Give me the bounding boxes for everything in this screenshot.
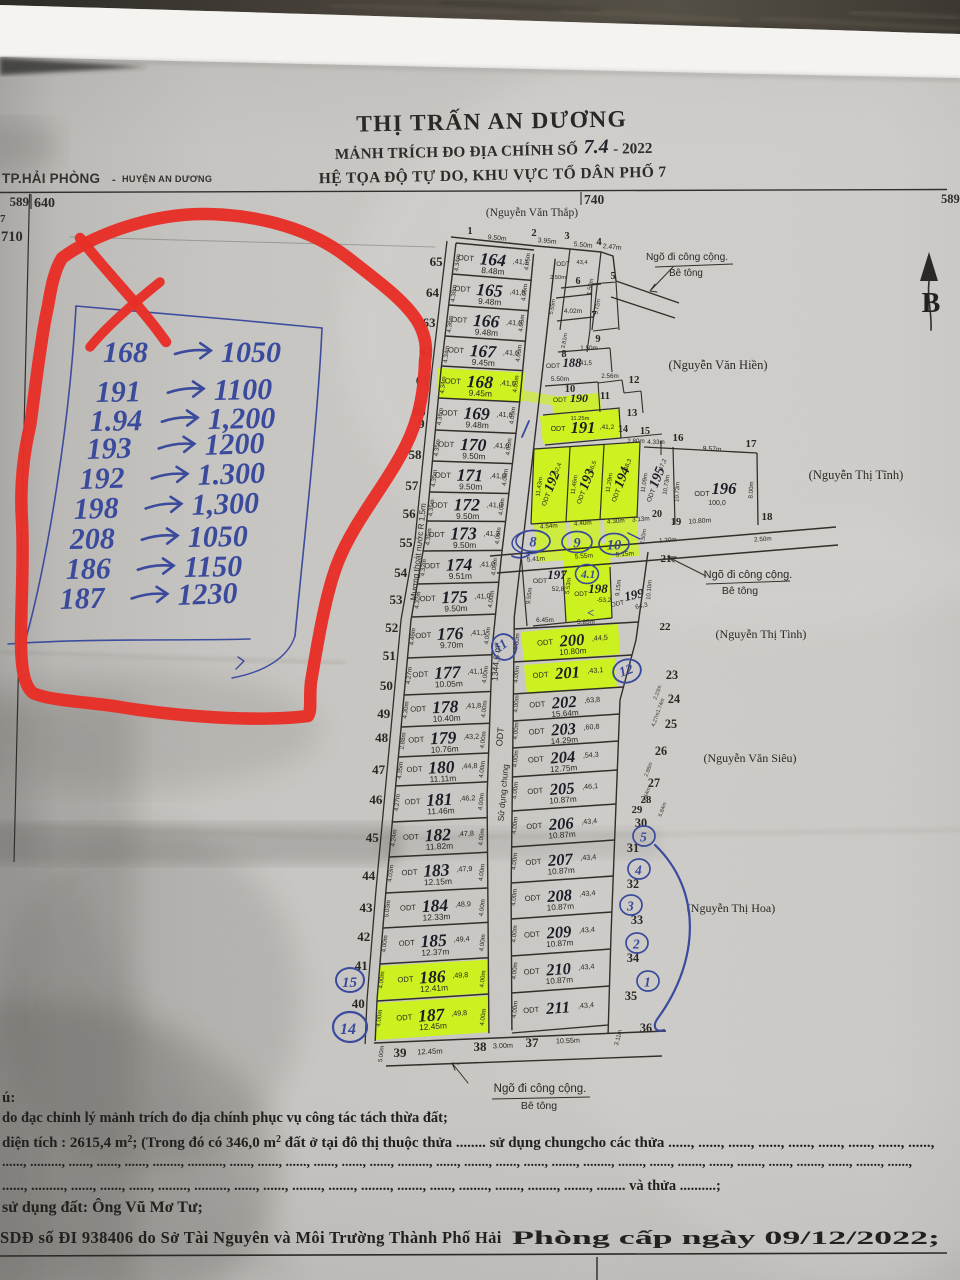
svg-text:ODT: ODT	[400, 903, 417, 913]
svg-text:12: 12	[629, 374, 641, 386]
svg-text:37: 37	[526, 1035, 540, 1050]
svg-text:41: 41	[355, 958, 368, 973]
svg-text:29: 29	[632, 804, 643, 816]
svg-text:ODT: ODT	[574, 591, 588, 598]
svg-text:ODT: ODT	[403, 832, 420, 842]
svg-text:,46,1: ,46,1	[582, 781, 599, 791]
svg-text:Ngõ đi công cộng.: Ngõ đi công cộng.	[646, 252, 728, 263]
svg-text:3.00m: 3.00m	[493, 1041, 513, 1051]
svg-text:,44,5: ,44,5	[592, 633, 609, 643]
svg-text:35: 35	[625, 989, 637, 1003]
svg-text:12.37m: 12.37m	[421, 946, 449, 958]
svg-text:12.15m: 12.15m	[424, 876, 452, 887]
svg-text:3: 3	[564, 231, 569, 242]
svg-text:190: 190	[570, 391, 588, 405]
svg-text:4: 4	[596, 237, 602, 248]
svg-text:TP.HẢI PHÒNG: TP.HẢI PHÒNG	[2, 171, 100, 186]
svg-text:Ngõ đi công cộng.: Ngõ đi công cộng.	[494, 1083, 587, 1095]
svg-text:14: 14	[340, 1021, 356, 1038]
svg-text:6: 6	[576, 276, 581, 287]
svg-text:10.87m: 10.87m	[546, 902, 574, 913]
svg-text:1050: 1050	[188, 520, 249, 554]
svg-text:Phòng cấp ngày 09/12/2022;: Phòng cấp ngày 09/12/2022;	[512, 1228, 940, 1249]
svg-text:- 2022: - 2022	[613, 140, 653, 158]
svg-text:44: 44	[362, 868, 376, 883]
svg-text:47: 47	[372, 762, 386, 777]
svg-text:640: 640	[34, 196, 55, 211]
svg-text:6.45m: 6.45m	[536, 617, 554, 624]
svg-text:10.73m: 10.73m	[674, 482, 681, 502]
svg-text:9.70m: 9.70m	[440, 639, 464, 650]
svg-text:187: 187	[59, 581, 106, 616]
svg-text:,46,2: ,46,2	[459, 793, 475, 803]
svg-text:1050: 1050	[221, 336, 281, 369]
svg-text:3.13m: 3.13m	[632, 515, 650, 523]
svg-text:,47,8: ,47,8	[458, 829, 474, 839]
svg-text:ODT: ODT	[529, 699, 546, 709]
svg-text:24: 24	[668, 692, 680, 706]
svg-text:9.50m: 9.50m	[444, 603, 468, 614]
svg-text:8: 8	[529, 535, 537, 551]
svg-text:10.87m: 10.87m	[548, 830, 576, 841]
svg-text:10.55m: 10.55m	[556, 1036, 580, 1046]
svg-text:1,300: 1,300	[191, 487, 260, 522]
svg-text:20: 20	[652, 509, 662, 520]
svg-text:(Nguyễn Thị Hoa): (Nguyễn Thị Hoa)	[687, 901, 775, 915]
svg-text:41,5: 41,5	[580, 361, 592, 367]
svg-text:100,0: 100,0	[708, 500, 726, 507]
svg-text:10.76m: 10.76m	[431, 743, 459, 754]
svg-text:10.40m: 10.40m	[433, 713, 461, 724]
svg-text:4: 4	[634, 863, 642, 878]
svg-text:5.15m: 5.15m	[616, 550, 635, 558]
svg-text:4.33m: 4.33m	[647, 439, 665, 446]
svg-text:9.50m: 9.50m	[456, 511, 479, 521]
svg-text:9.48m: 9.48m	[475, 326, 499, 338]
svg-text:ODT: ODT	[406, 764, 423, 774]
svg-text:ODT: ODT	[494, 726, 506, 746]
svg-text:ODT: ODT	[694, 489, 710, 498]
svg-text:46: 46	[369, 792, 383, 807]
svg-text:4.54m: 4.54m	[540, 522, 558, 530]
svg-text:B: B	[922, 288, 941, 319]
svg-text:,41,8: ,41,8	[465, 701, 481, 711]
svg-text:(Nguyễn Văn Thắp): (Nguyễn Văn Thắp)	[486, 206, 578, 219]
svg-text:10.87m: 10.87m	[547, 866, 575, 877]
svg-text:,49,4: ,49,4	[453, 934, 469, 944]
svg-text:ODT: ODT	[551, 426, 567, 433]
svg-text:(Nguyễn Văn Siêu): (Nguyễn Văn Siêu)	[703, 751, 796, 765]
svg-text:-: -	[112, 174, 116, 186]
svg-text:8.00m: 8.00m	[748, 481, 756, 499]
svg-text:8.48m: 8.48m	[481, 265, 505, 277]
svg-text:2: 2	[632, 937, 640, 952]
svg-text:19: 19	[671, 517, 682, 528]
svg-text:12.41m: 12.41m	[420, 982, 449, 994]
svg-text:<: <	[587, 605, 594, 620]
svg-text:9.57m: 9.57m	[702, 446, 722, 454]
svg-text:11.25m: 11.25m	[571, 416, 590, 422]
svg-text:14: 14	[618, 424, 628, 435]
svg-text:ODT: ODT	[415, 631, 432, 641]
svg-text:4.02m: 4.02m	[564, 308, 583, 315]
svg-text:ODT: ODT	[404, 797, 421, 807]
svg-text:2: 2	[531, 228, 536, 239]
svg-text:51: 51	[383, 648, 396, 663]
svg-text:208: 208	[69, 522, 116, 556]
svg-text:43: 43	[360, 900, 374, 915]
svg-text:211: 211	[545, 997, 571, 1018]
svg-text:64: 64	[426, 285, 440, 300]
svg-text:,43,4: ,43,4	[579, 925, 596, 935]
svg-text:3: 3	[626, 899, 634, 914]
svg-text:ODT: ODT	[412, 670, 429, 680]
svg-text:15: 15	[342, 975, 358, 991]
svg-text:2.50m: 2.50m	[550, 275, 566, 281]
svg-text:7: 7	[0, 213, 6, 225]
svg-text:ODT: ODT	[532, 670, 549, 680]
svg-text:4.40m: 4.40m	[574, 519, 592, 527]
svg-text:sử dụng đất: Ông Vũ Mơ Tư;: sử dụng đất: Ông Vũ Mơ Tư;	[2, 1197, 203, 1216]
svg-text:5: 5	[640, 830, 647, 845]
svg-text:50: 50	[380, 678, 393, 693]
svg-text:,41,2: ,41,2	[600, 424, 615, 431]
svg-text:10.87m: 10.87m	[546, 938, 574, 949]
svg-text:11.46m: 11.46m	[427, 805, 455, 816]
svg-text:ODT: ODT	[553, 397, 567, 404]
svg-text:ODT: ODT	[528, 726, 545, 736]
svg-text:192: 192	[79, 461, 125, 496]
svg-text:ODT: ODT	[523, 1005, 540, 1015]
svg-text:,48,9: ,48,9	[455, 899, 471, 909]
svg-text:(Nguyễn Thị Tĩnh): (Nguyễn Thị Tĩnh)	[809, 468, 904, 482]
svg-text:2.56m: 2.56m	[601, 373, 619, 380]
svg-text:2.80m: 2.80m	[627, 438, 645, 445]
svg-text:9.51m: 9.51m	[449, 571, 472, 581]
svg-text:9.48m: 9.48m	[465, 419, 489, 430]
svg-text:26: 26	[655, 744, 667, 758]
svg-text:197: 197	[547, 567, 567, 582]
svg-text:,49,8: ,49,8	[452, 970, 469, 980]
svg-text:589: 589	[941, 192, 960, 206]
svg-text:ODT: ODT	[399, 938, 416, 948]
svg-text:2.50m: 2.50m	[754, 535, 772, 543]
svg-text:40: 40	[352, 996, 365, 1011]
svg-text:(Nguyễn Thị Tình): (Nguyễn Thị Tình)	[716, 627, 807, 641]
svg-text:Bê tông: Bê tông	[669, 268, 703, 279]
svg-text:5.55m: 5.55m	[575, 552, 594, 560]
svg-text:65: 65	[430, 254, 444, 269]
svg-text:740: 740	[584, 192, 605, 207]
svg-text:ODT: ODT	[408, 735, 425, 745]
svg-text:186: 186	[66, 552, 112, 586]
svg-text:11.11m: 11.11m	[429, 773, 456, 784]
svg-text:9: 9	[573, 536, 580, 552]
svg-text:......, ........., ......, ...: ......, ........., ......, ......, .....…	[2, 1155, 912, 1170]
svg-text:ODT: ODT	[397, 974, 414, 984]
svg-text:16: 16	[673, 432, 685, 444]
svg-text:11: 11	[600, 391, 610, 402]
svg-text:45: 45	[366, 830, 380, 845]
svg-text:53: 53	[390, 592, 404, 607]
svg-text:Bê tông: Bê tông	[521, 1100, 557, 1112]
svg-text:ODT: ODT	[410, 704, 427, 714]
svg-text:196: 196	[712, 479, 738, 498]
svg-text:7.4: 7.4	[583, 136, 608, 158]
svg-text:18: 18	[762, 511, 774, 523]
svg-text:10.80m: 10.80m	[559, 646, 587, 657]
svg-text:5.50m: 5.50m	[551, 376, 570, 383]
svg-text:Ngõ đi công cộng.: Ngõ đi công cộng.	[704, 569, 793, 581]
svg-text:do đạc chỉnh lý mảnh trích đo: do đạc chỉnh lý mảnh trích đo địa chính …	[2, 1110, 448, 1126]
svg-text:39: 39	[394, 1045, 408, 1060]
svg-text:HUYỆN AN DƯƠNG: HUYỆN AN DƯƠNG	[122, 173, 212, 184]
svg-text:201: 201	[553, 662, 580, 683]
svg-text:23: 23	[666, 668, 678, 682]
svg-text:1230: 1230	[177, 577, 238, 612]
svg-text:9.50m: 9.50m	[462, 451, 486, 462]
svg-text:,43,1: ,43,1	[587, 665, 604, 675]
svg-text:5: 5	[611, 271, 616, 282]
svg-text:,44,8: ,44,8	[461, 761, 477, 771]
svg-text:589: 589	[10, 194, 30, 209]
svg-text:ODT: ODT	[526, 821, 543, 831]
svg-text:ú:: ú:	[2, 1090, 15, 1106]
svg-text:52,8: 52,8	[552, 586, 565, 593]
svg-text:12.33m: 12.33m	[422, 911, 450, 922]
svg-text:57: 57	[405, 478, 419, 493]
svg-text:5.41m: 5.41m	[527, 555, 546, 563]
svg-text:54: 54	[394, 565, 408, 580]
svg-text:9.48m: 9.48m	[478, 296, 502, 308]
svg-text:,43,4: ,43,4	[581, 816, 598, 826]
svg-text:ODT: ODT	[524, 929, 541, 939]
svg-text:193: 193	[86, 431, 132, 466]
svg-text:10.87m: 10.87m	[545, 975, 573, 986]
svg-text:4.1: 4.1	[580, 569, 595, 581]
svg-text:9.45m: 9.45m	[468, 388, 492, 399]
svg-text:10.05m: 10.05m	[435, 678, 463, 689]
svg-text:ODT: ODT	[533, 578, 547, 585]
svg-text:,54,3: ,54,3	[582, 750, 599, 760]
svg-text:710: 710	[1, 229, 23, 245]
svg-text:22: 22	[660, 621, 672, 633]
svg-text:ODT: ODT	[546, 363, 560, 370]
svg-text:9.50m: 9.50m	[453, 540, 476, 550]
svg-text:55: 55	[400, 535, 414, 550]
svg-text:(Nguyễn Văn Hiền): (Nguyễn Văn Hiền)	[668, 358, 767, 372]
svg-text:THỊ TRẤN AN DƯƠNG: THỊ TRẤN AN DƯƠNG	[356, 105, 627, 137]
svg-text:ODT: ODT	[528, 754, 545, 764]
svg-text:4.30m: 4.30m	[607, 517, 625, 525]
svg-text:52: 52	[385, 620, 398, 635]
svg-text:,43,2: ,43,2	[463, 732, 479, 742]
svg-text:56: 56	[403, 506, 417, 521]
svg-text:9.45m: 9.45m	[471, 357, 495, 368]
svg-text:48: 48	[375, 730, 389, 745]
svg-text:49: 49	[377, 706, 391, 721]
svg-text:43,4: 43,4	[576, 260, 588, 266]
svg-text:ODT: ODT	[401, 868, 418, 878]
svg-text:9.50m: 9.50m	[459, 481, 483, 492]
svg-text:168: 168	[103, 336, 148, 369]
svg-text:ODT: ODT	[537, 637, 554, 647]
svg-text:11.82m: 11.82m	[426, 841, 454, 852]
svg-text:13: 13	[627, 408, 638, 419]
svg-text:1: 1	[467, 226, 472, 237]
svg-text:diện tích : 2615,4 m2; (Trong: diện tích : 2615,4 m2; (Trong đó có 346,…	[2, 1134, 935, 1151]
svg-text:198: 198	[73, 491, 119, 526]
svg-text:,43,4: ,43,4	[580, 852, 597, 862]
svg-text:17: 17	[746, 438, 758, 450]
svg-text:,49,8: ,49,8	[451, 1008, 468, 1018]
svg-text:36: 36	[640, 1021, 652, 1035]
svg-text:38: 38	[474, 1039, 488, 1054]
svg-text:1.50m: 1.50m	[580, 345, 598, 352]
svg-text:12.45m: 12.45m	[417, 1047, 443, 1057]
svg-text:SDĐ số ĐI 938406 do Sở Tài Ngu: SDĐ số ĐI 938406 do Sở Tài Nguyên và Môi…	[0, 1228, 502, 1247]
svg-text:,60,8: ,60,8	[583, 722, 600, 732]
svg-text:,63,8: ,63,8	[584, 695, 601, 705]
svg-text:25: 25	[665, 717, 677, 731]
svg-text:,47,9: ,47,9	[456, 864, 472, 874]
svg-text:,43,4: ,43,4	[578, 962, 595, 972]
svg-text:1.20m: 1.20m	[659, 536, 677, 544]
svg-text:,43,4: ,43,4	[578, 1000, 595, 1010]
svg-text:ODT: ODT	[396, 1013, 413, 1023]
svg-text:12.45m: 12.45m	[419, 1020, 448, 1032]
svg-text:ODT: ODT	[527, 786, 544, 796]
svg-text:ODT: ODT	[525, 857, 542, 867]
svg-text:Bê tông: Bê tông	[722, 585, 758, 597]
svg-text:ODT: ODT	[524, 893, 541, 903]
svg-text:10.87m: 10.87m	[549, 795, 577, 806]
svg-text:42: 42	[357, 929, 370, 944]
svg-text:9: 9	[595, 334, 600, 345]
svg-text:ODT: ODT	[523, 966, 540, 976]
svg-text:1: 1	[644, 975, 651, 990]
svg-text:,43,4: ,43,4	[579, 888, 596, 898]
svg-text:......, ........., ......, ...: ......, ........., ......, ......, .....…	[2, 1178, 721, 1194]
